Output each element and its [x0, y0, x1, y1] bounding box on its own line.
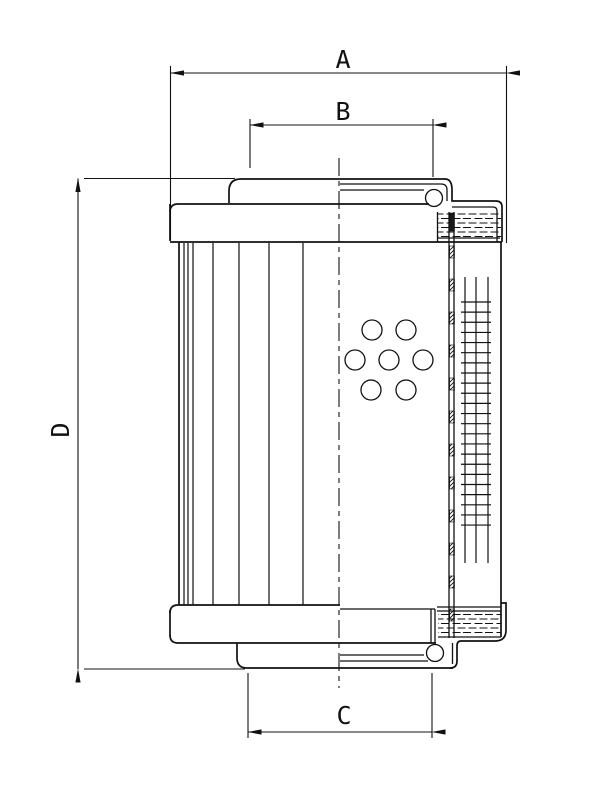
top-spigot-inner-wall: [340, 184, 447, 201]
dim-b-label: B: [335, 97, 350, 126]
filter-element-drawing: A B D C: [0, 0, 612, 792]
dimension-b: B: [250, 97, 433, 177]
perforation-holes: [345, 320, 433, 400]
pleat-lines: [184, 243, 303, 605]
filter-mesh-grid: [461, 277, 491, 563]
pleated-body: [179, 242, 303, 605]
dimension-d: D: [46, 179, 245, 670]
dimension-c: C: [248, 673, 432, 738]
technical-drawing-sheet: A B D C: [0, 0, 612, 792]
bottom-seal-hatch: [438, 611, 501, 637]
o-ring-bottom: [427, 645, 444, 662]
top-seal-hatch: [438, 212, 501, 238]
bottom-flange-bottom-edge: [170, 635, 436, 643]
top-seal-section: [438, 212, 502, 242]
bottom-flange-top-left: [170, 605, 340, 613]
dim-c-label: C: [336, 701, 351, 730]
top-flange-top-edge: [170, 204, 429, 212]
dim-d-label: D: [46, 422, 75, 437]
section-right-half: [449, 212, 501, 638]
bottom-end-cap: [170, 603, 506, 668]
dim-a-label: A: [335, 45, 350, 74]
